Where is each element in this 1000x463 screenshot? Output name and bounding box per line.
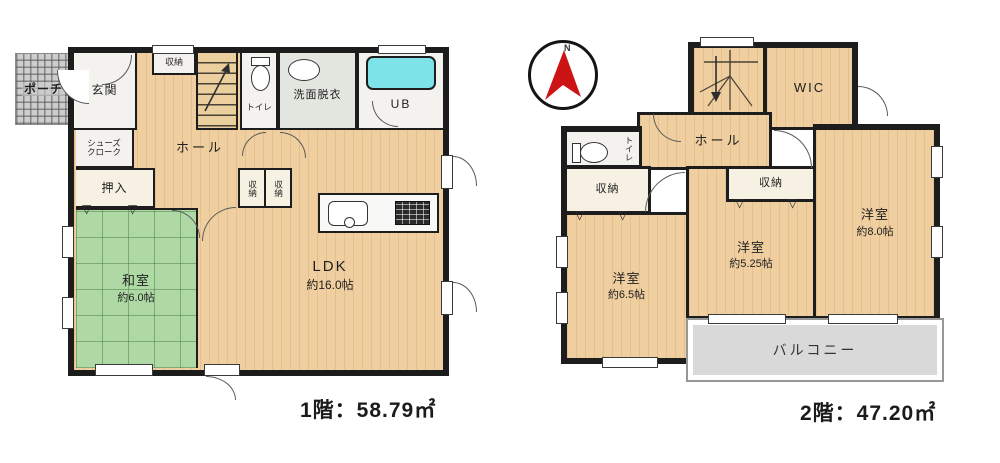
closet-top-label: 収納 [165,58,183,68]
window [556,236,568,268]
toilet-1f-label: トイレ [242,103,276,112]
shoe-cloak-label-2: クローク [87,148,121,157]
bedroom-80-size-label: 約8.0帖 [856,223,893,239]
porch-label: ポーチ [22,82,65,96]
wic-door-arc [858,86,888,116]
balcony-door [708,314,786,324]
room-bedroom-80: 洋室 約8.0帖 [813,124,940,322]
balcony-label: バルコニー [773,342,858,359]
washitsu-label: 和室 [122,273,150,289]
bedroom-525-label: 洋室 [737,240,765,256]
stairs-up-arrow-icon [199,59,235,119]
mid-closets: 収納 収納 [238,168,292,208]
room-ldk: LDK 約16.0帖 [270,258,390,293]
terrace-door-arc [206,376,236,400]
oshiire-label: 押入 [101,181,127,195]
window [931,226,943,258]
closet-mid-right-label: 収納 [273,180,282,197]
window [95,364,153,376]
window [441,281,453,315]
closet-door-marker-icon: ▽ [618,209,627,221]
window-swing-arc [453,156,477,186]
compass: N [528,40,598,110]
bedroom-65-label: 洋室 [612,271,640,287]
floor1-plan: 玄関 収納 トイレ 洗面脱衣 UB ホール シューズ クローク 押入 和室 [68,47,449,376]
closet-door-marker-icon: ▽ [788,197,797,209]
balcony: バルコニー [686,318,944,382]
north-arrow-icon [531,43,594,106]
room-closet-left-2f: 収納 [561,166,651,214]
stairs-2f [688,42,766,116]
washitsu-size-label: 約6.0帖 [117,289,154,305]
window [378,45,426,54]
terrace-door [204,364,240,376]
bedroom-65-door-arc [645,172,685,212]
stairs-1f [196,53,238,130]
window [700,37,754,47]
closet-door-marker-icon: ▽ [128,203,137,215]
stairs-down-arrow-icon [694,48,764,114]
ldk-size-label: 約16.0帖 [270,276,390,293]
room-closet-top: 収納 [152,53,196,75]
room-closet-mid-left: 収納 [238,168,266,208]
closet-mid-2f-label: 収納 [759,177,783,190]
balcony-door [828,314,898,324]
ldk-door-arc [202,207,236,241]
washbasin-icon [288,59,320,81]
window [602,357,658,368]
window [152,45,194,54]
washroom-door-arc [280,132,306,158]
kitchen-faucet-icon [344,217,355,228]
room-bedroom-65: 洋室 約6.5帖 [561,212,689,364]
window [62,297,74,329]
toilet-icon [580,142,608,163]
closet-mid-left-label: 収納 [247,180,256,197]
kitchen-stove-icon [395,201,430,225]
window [931,146,943,178]
room-wic: WIC [764,42,858,130]
closet-left-2f-label: 収納 [596,183,620,196]
closet-door-marker-icon: ▽ [575,209,584,221]
room-bath-ub: UB [357,53,443,130]
window [441,155,453,189]
wic-label: WIC [794,80,825,96]
toilet-2f-label: トイレ [624,136,633,162]
hall-1f: ホール [158,139,242,157]
window-swing-arc [453,282,477,312]
toilet-door-arc [242,132,266,156]
hall-2f-label: ホール [694,133,742,149]
toilet-icon [251,65,270,91]
window [62,226,74,258]
washroom-label: 洗面脱衣 [280,89,355,102]
room-toilet-2f: トイレ [561,126,642,168]
compass-north-label: N [564,43,571,53]
entrance-label: 玄関 [91,83,117,97]
hall-right-door-arc [774,130,812,168]
floor2-caption: 2階：47.20㎡ [800,397,936,427]
bedroom-65-size-label: 約6.5帖 [608,286,645,302]
bathtub-icon [366,56,436,90]
closet-door-marker-icon: ▽ [82,203,91,215]
bedroom-80-label: 洋室 [861,207,889,223]
floor1-caption: 1階：58.79㎡ [300,394,436,424]
room-washroom: 洗面脱衣 [278,53,357,130]
room-shoe-cloak: シューズ クローク [76,128,134,168]
toilet-tank-icon [251,57,270,66]
kitchen-counter [318,193,439,233]
room-closet-mid-right: 収納 [266,168,292,208]
room-toilet-1f: トイレ [240,53,278,130]
window [556,292,568,324]
hall-1f-label: ホール [176,140,224,155]
closet-door-marker-icon: ▽ [735,197,744,209]
bedroom-525-size-label: 約5.25帖 [729,255,772,271]
ldk-label: LDK [270,258,390,276]
